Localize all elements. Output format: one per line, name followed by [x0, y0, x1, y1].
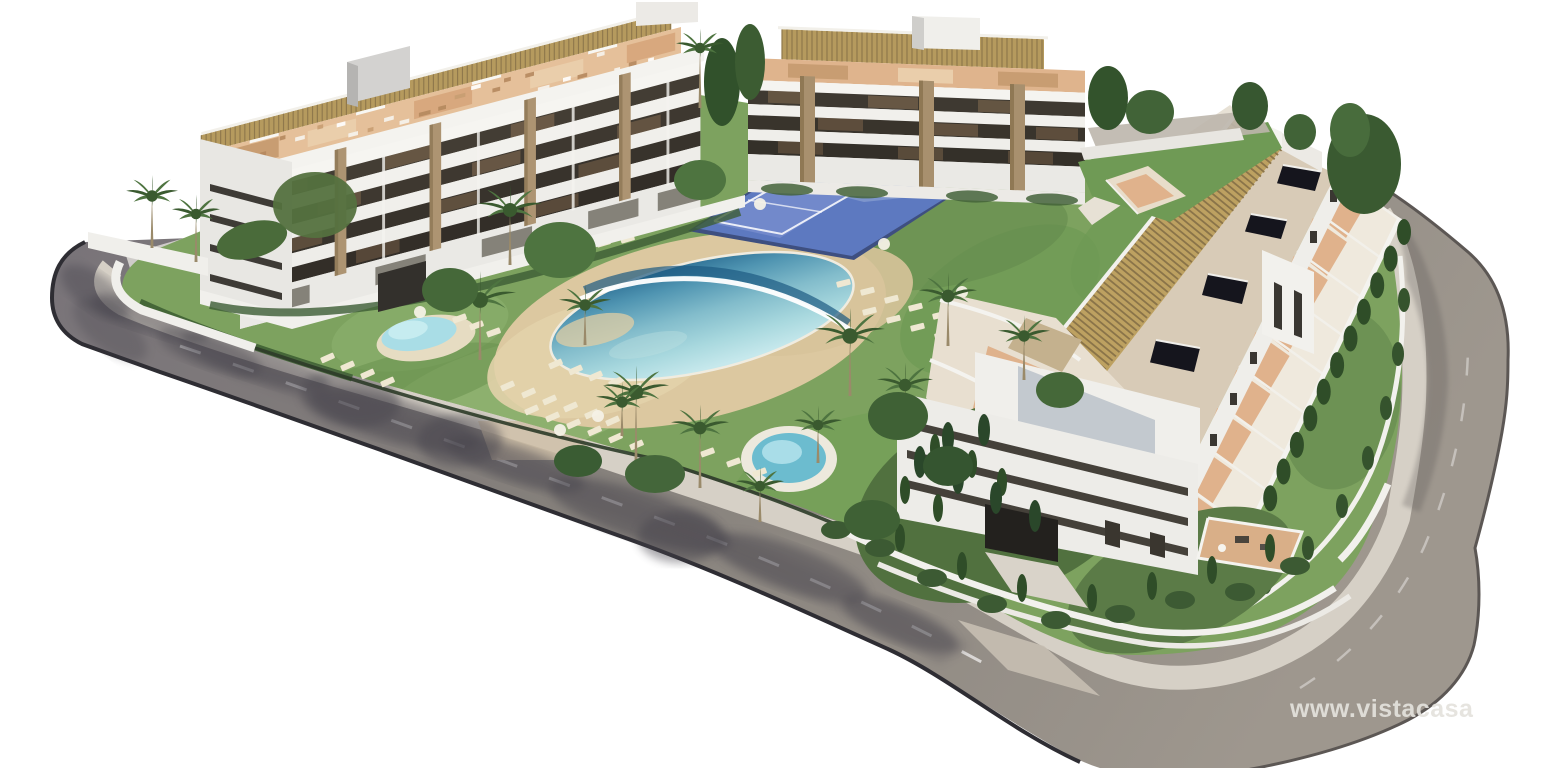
svg-text:www.vistacasa: www.vistacasa — [1289, 695, 1474, 723]
